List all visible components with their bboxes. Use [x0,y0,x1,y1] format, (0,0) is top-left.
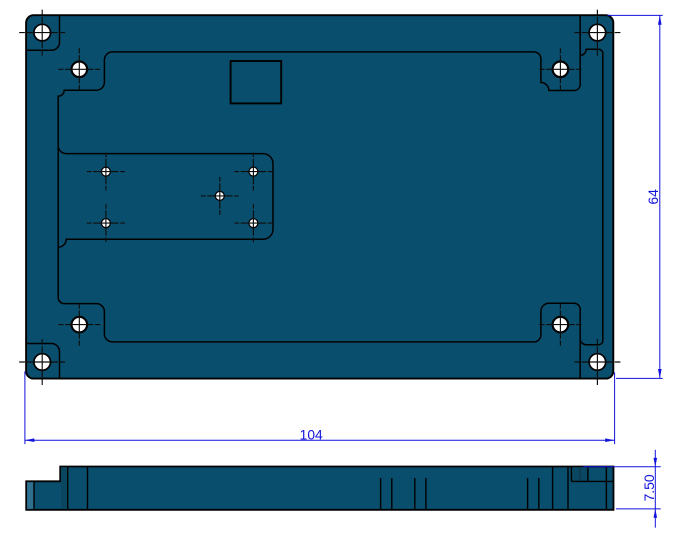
svg-text:64: 64 [645,189,661,205]
svg-text:104: 104 [300,427,323,442]
svg-text:7.50: 7.50 [641,474,657,501]
